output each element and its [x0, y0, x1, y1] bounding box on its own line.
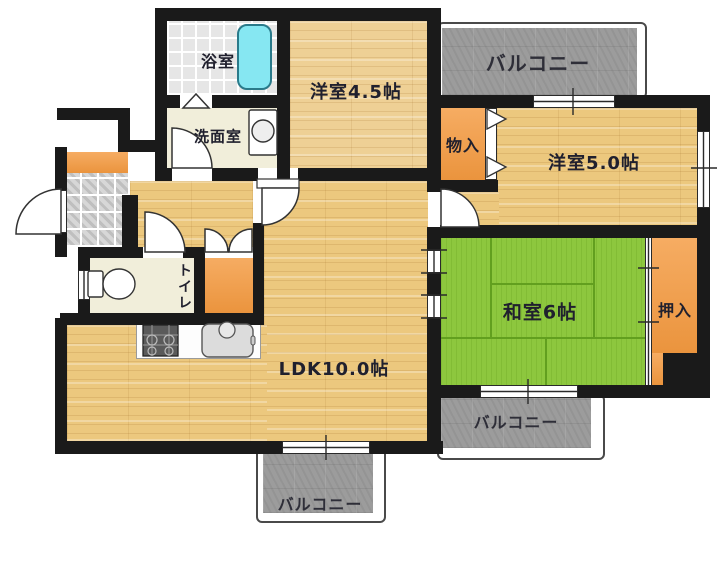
toilet-tank-icon	[88, 271, 103, 297]
closet-double-door-arc	[205, 229, 228, 252]
balcony-bottom-label: バルコニー	[278, 491, 363, 515]
entry-door-swing-arc	[16, 189, 61, 234]
floor-plan: 浴室 洗面室 洋室4.5帖 バルコニー 物入 洋室5.0帖 押入 和室6帖 トイ…	[0, 0, 720, 576]
japanese-room-label: 和室6帖	[503, 298, 577, 325]
stove-icon	[143, 325, 178, 356]
western-room-50-label: 洋室5.0帖	[548, 149, 640, 175]
western-room-50-door-swing-arc	[441, 189, 479, 227]
bath-door-symbol	[183, 94, 209, 108]
balcony-top-label: バルコニー	[486, 48, 591, 77]
toilet-door-swing-arc	[145, 212, 185, 252]
washing-machine-drum-icon	[252, 120, 274, 142]
sink-icon	[202, 322, 255, 357]
western-room-45-label: 洋室4.5帖	[310, 78, 402, 104]
ldk-door-leaf	[257, 179, 299, 188]
balcony-side-label: バルコニー	[474, 409, 559, 433]
storage-folding-door-symbol	[487, 109, 506, 129]
storage-folding-door-symbol	[487, 157, 506, 177]
storage-label: 物入	[446, 132, 480, 156]
toilet-bowl-icon	[103, 269, 135, 299]
washroom-label: 洗面室	[194, 126, 242, 147]
ldk-label: LDK10.0帖	[279, 355, 390, 381]
oshiire-label: 押入	[658, 297, 692, 321]
bath-label: 浴室	[201, 48, 235, 72]
toilet-label: トイレ	[174, 263, 194, 311]
ldk-door-swing-arc	[262, 188, 299, 225]
closet-double-door-arc	[229, 229, 252, 252]
